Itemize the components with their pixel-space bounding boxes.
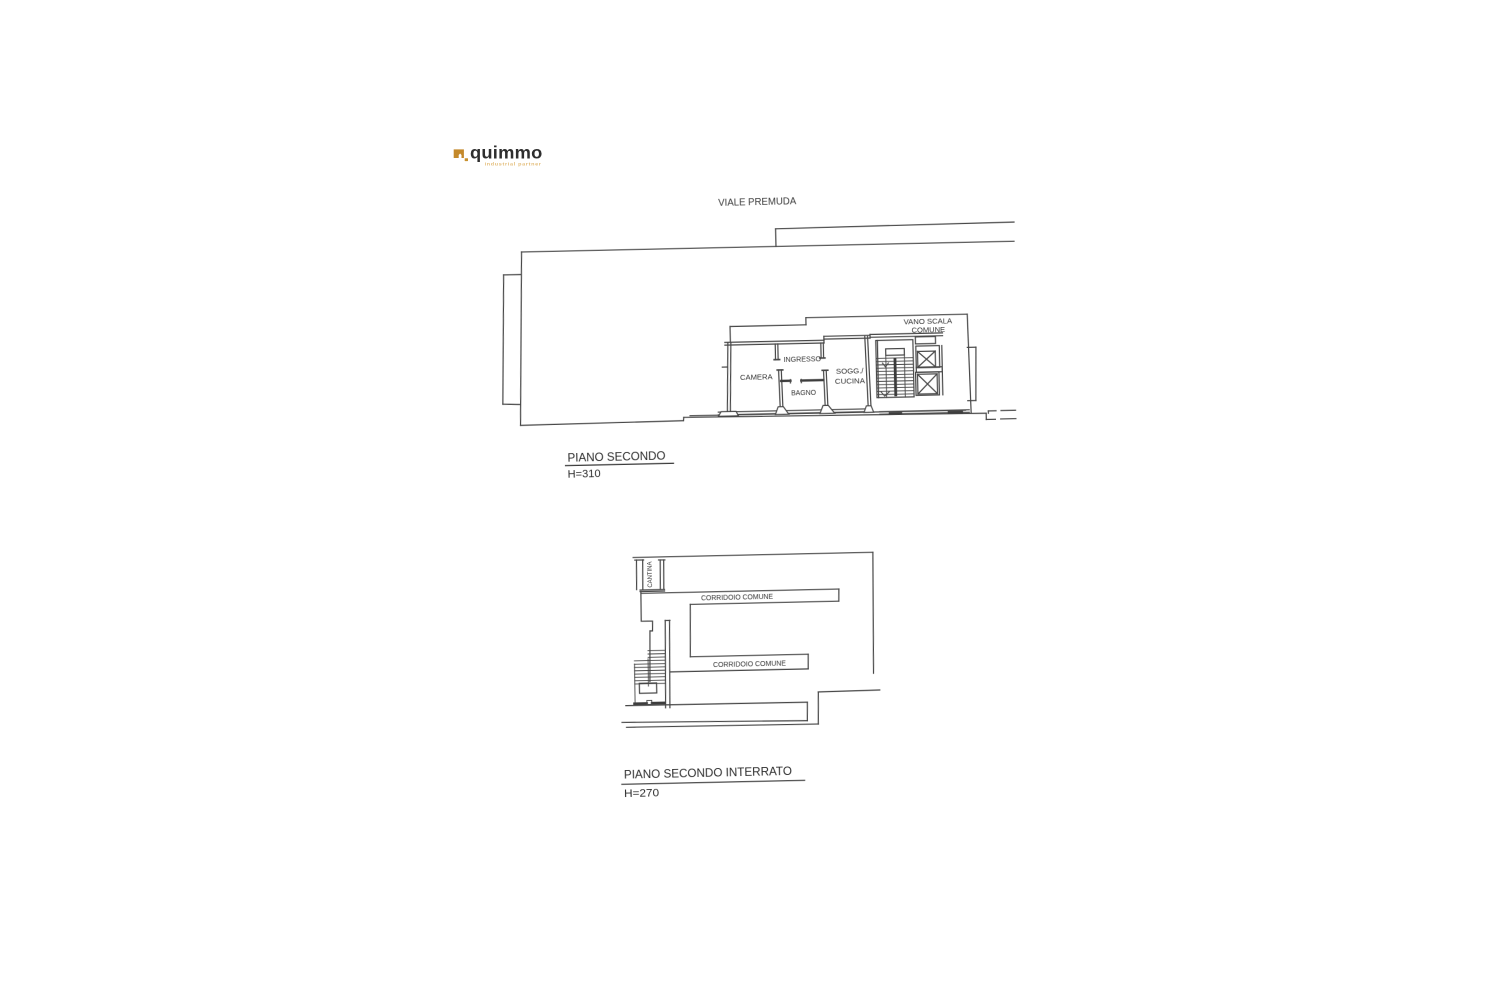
- svg-text:CAMERA: CAMERA: [740, 374, 773, 382]
- svg-text:INGRESSO: INGRESSO: [783, 356, 821, 364]
- svg-text:quimmo: quimmo: [470, 143, 543, 163]
- svg-text:COMUNE: COMUNE: [912, 327, 946, 335]
- svg-text:VIALE PREMUDA: VIALE PREMUDA: [718, 196, 797, 209]
- svg-text:BAGNO: BAGNO: [791, 390, 817, 398]
- svg-text:H=310: H=310: [567, 468, 600, 481]
- svg-text:SOGG./: SOGG./: [836, 368, 864, 376]
- svg-text:CORRIDOIO COMUNE: CORRIDOIO COMUNE: [701, 592, 773, 603]
- svg-text:CANTINA: CANTINA: [647, 561, 655, 588]
- svg-text:VANO SCALA: VANO SCALA: [904, 318, 953, 326]
- svg-text:PIANO SECONDO: PIANO SECONDO: [567, 449, 665, 465]
- svg-text:CUCINA: CUCINA: [835, 378, 866, 386]
- svg-text:industrial partner: industrial partner: [485, 161, 542, 167]
- svg-text:CORRIDOIO COMUNE: CORRIDOIO COMUNE: [713, 658, 786, 669]
- svg-text:H=270: H=270: [624, 787, 659, 800]
